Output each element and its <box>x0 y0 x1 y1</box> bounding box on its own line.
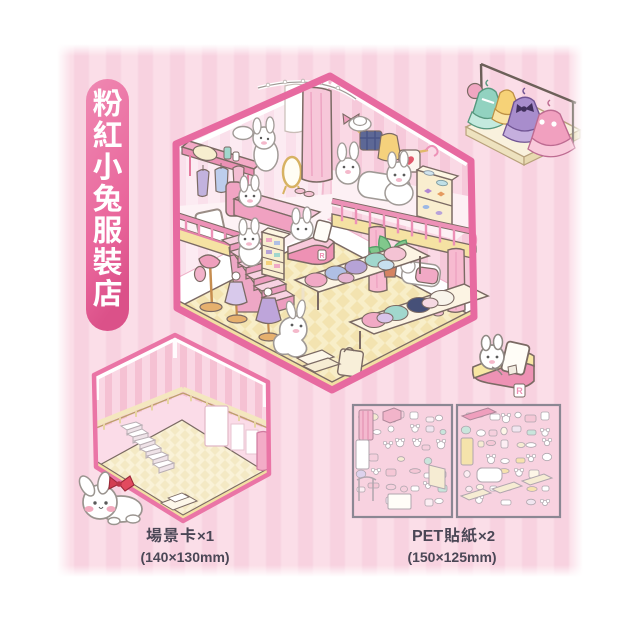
svg-text:R: R <box>516 386 523 396</box>
svg-text:×1: ×1 <box>197 528 214 545</box>
svg-text:(140×130mm): (140×130mm) <box>140 549 229 565</box>
svg-text:×2: ×2 <box>478 528 495 545</box>
svg-text:(150×125mm): (150×125mm) <box>407 549 496 565</box>
svg-text:PET: PET <box>412 528 443 545</box>
svg-text:R: R <box>319 253 324 260</box>
